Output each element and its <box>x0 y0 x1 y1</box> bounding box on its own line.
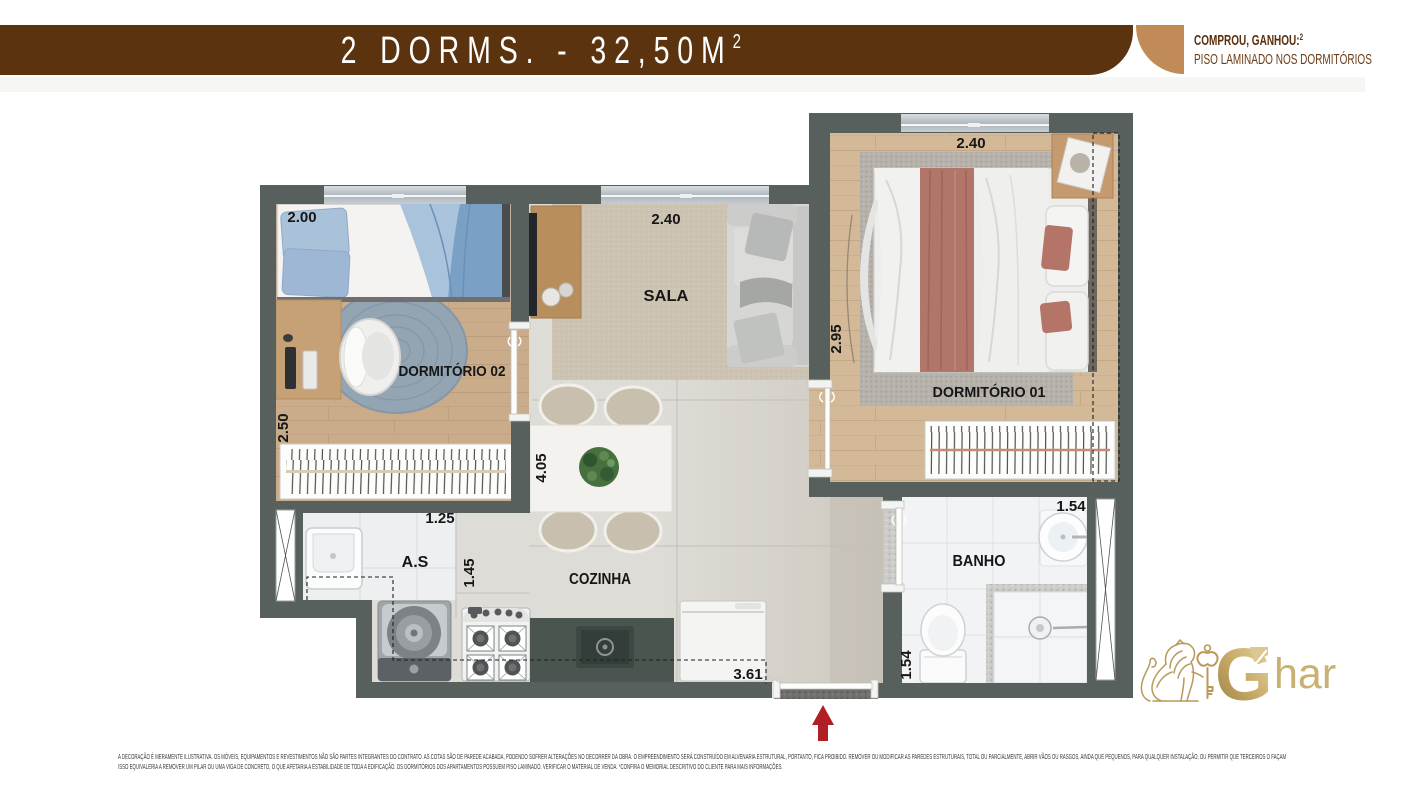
svg-text:1.45: 1.45 <box>461 558 478 587</box>
svg-text:COZINHA: COZINHA <box>569 571 631 588</box>
svg-text:2.40: 2.40 <box>651 211 680 228</box>
svg-text:1.54: 1.54 <box>1056 498 1086 515</box>
svg-text:G: G <box>1215 633 1273 716</box>
svg-text:1.54: 1.54 <box>898 650 915 680</box>
svg-text:A.S: A.S <box>402 554 429 571</box>
svg-text:DORMITÓRIO 02: DORMITÓRIO 02 <box>399 362 506 380</box>
svg-text:BANHO: BANHO <box>953 553 1006 570</box>
svg-text:3.61: 3.61 <box>733 666 762 683</box>
svg-text:DORMITÓRIO 01: DORMITÓRIO 01 <box>933 383 1046 401</box>
svg-text:2.95: 2.95 <box>828 324 845 353</box>
svg-text:har: har <box>1274 650 1336 698</box>
svg-text:2.00: 2.00 <box>287 209 316 226</box>
svg-text:4.05: 4.05 <box>533 453 550 482</box>
svg-text:SALA: SALA <box>644 288 689 305</box>
svg-text:2.40: 2.40 <box>956 135 985 152</box>
svg-text:2.50: 2.50 <box>275 413 292 442</box>
svg-text:1.25: 1.25 <box>425 510 454 527</box>
